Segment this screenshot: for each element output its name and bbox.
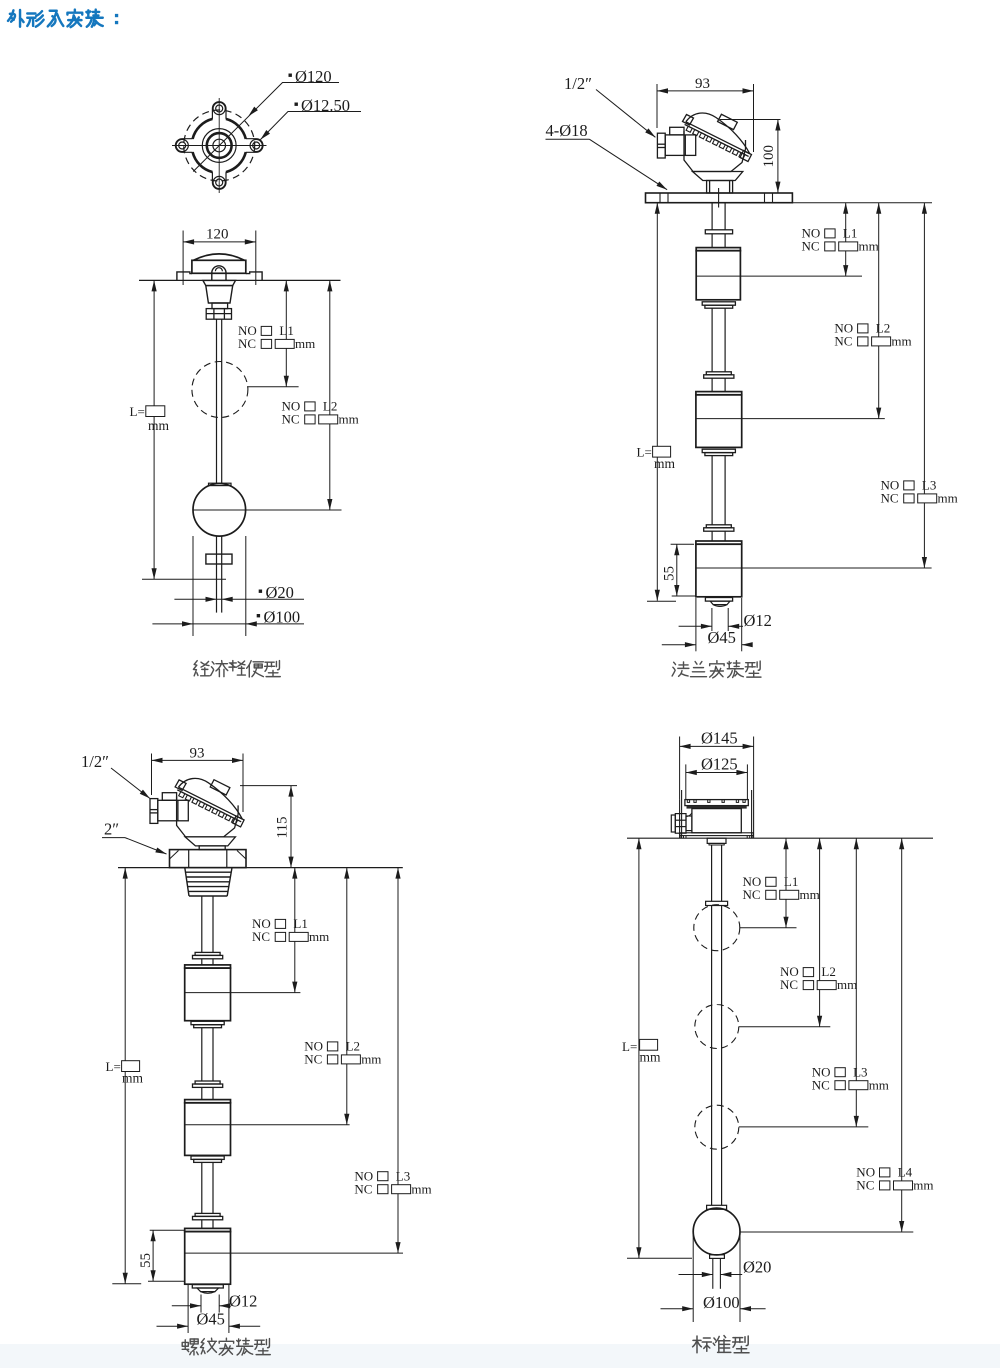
svg-text:mm: mm <box>654 456 676 471</box>
svg-text:1/2″: 1/2″ <box>81 752 109 771</box>
svg-text:2″: 2″ <box>104 820 119 839</box>
svg-text:L3: L3 <box>853 1064 867 1079</box>
svg-text:L2: L2 <box>821 964 835 979</box>
svg-text:Ø12.50: Ø12.50 <box>301 96 350 115</box>
svg-text:L2: L2 <box>876 321 890 336</box>
svg-text:Ø100: Ø100 <box>703 1293 740 1312</box>
svg-text:L1: L1 <box>279 323 293 338</box>
svg-text:mm: mm <box>148 418 170 433</box>
svg-text:Ø45: Ø45 <box>708 628 736 647</box>
svg-text:55: 55 <box>662 566 678 581</box>
svg-text:L2: L2 <box>346 1039 360 1054</box>
svg-text:Ø145: Ø145 <box>701 729 738 748</box>
svg-text:L1: L1 <box>784 874 798 889</box>
svg-text:L1: L1 <box>843 226 857 241</box>
svg-text:L=: L= <box>130 404 145 419</box>
svg-text:4-Ø18: 4-Ø18 <box>546 121 588 140</box>
svg-text:Ø20: Ø20 <box>266 583 294 602</box>
svg-text:mm: mm <box>640 1050 662 1065</box>
svg-text:93: 93 <box>695 76 710 92</box>
svg-text:55: 55 <box>138 1253 154 1268</box>
svg-text:L=: L= <box>622 1039 637 1054</box>
svg-text:L3: L3 <box>396 1168 410 1183</box>
svg-text:100: 100 <box>761 145 777 168</box>
svg-text:93: 93 <box>190 746 205 762</box>
svg-text:Ø100: Ø100 <box>264 608 301 627</box>
svg-text:Ø120: Ø120 <box>295 67 332 86</box>
svg-text:L3: L3 <box>922 478 936 493</box>
svg-text:L1: L1 <box>293 916 307 931</box>
svg-text:L2: L2 <box>323 399 337 414</box>
svg-text:L=: L= <box>106 1059 121 1074</box>
svg-text:Ø12: Ø12 <box>229 1292 257 1311</box>
svg-text:Ø125: Ø125 <box>701 755 738 774</box>
svg-text:1/2″: 1/2″ <box>564 74 592 93</box>
svg-text:L=: L= <box>637 445 652 460</box>
svg-text:Ø20: Ø20 <box>743 1258 771 1277</box>
svg-text:L4: L4 <box>898 1165 913 1180</box>
svg-text:Ø45: Ø45 <box>197 1310 225 1329</box>
svg-text:120: 120 <box>206 227 229 243</box>
svg-text:Ø12: Ø12 <box>744 611 772 630</box>
svg-text:115: 115 <box>275 817 291 839</box>
svg-text:mm: mm <box>122 1071 144 1086</box>
